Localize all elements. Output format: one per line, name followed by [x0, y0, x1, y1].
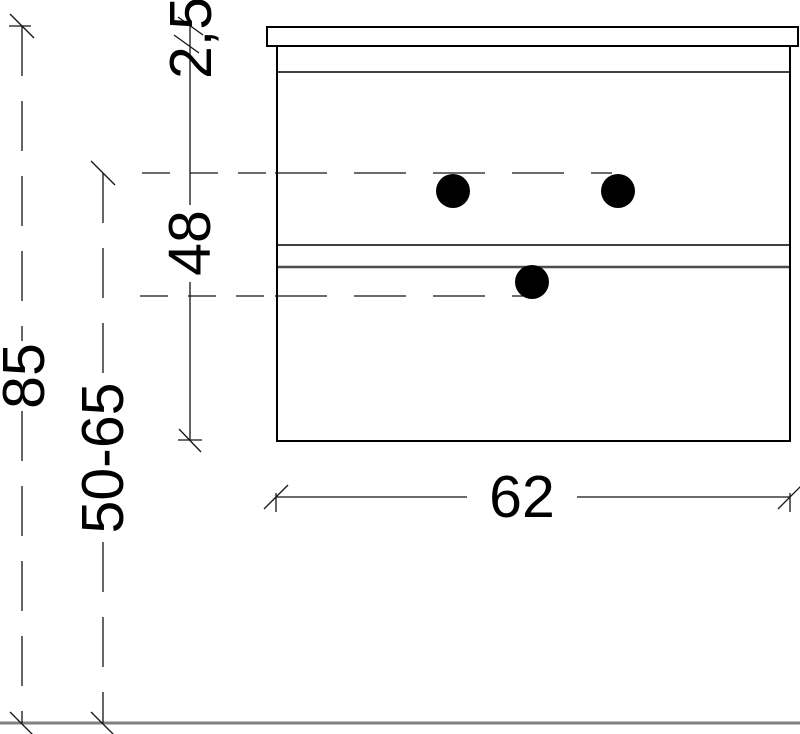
drawing-canvas: 85 50-65 2,5 48 62: [0, 0, 800, 734]
dim-50-65-label: 50-65: [70, 383, 136, 534]
dim-62-label: 62: [489, 464, 555, 530]
countertop-slab: [267, 27, 798, 46]
cabinet-body: [277, 46, 790, 441]
dim-48-label: 48: [157, 210, 223, 276]
cabinet-dimension-drawing: 85 50-65 2,5 48 62: [0, 0, 800, 734]
dim-85-label: 85: [0, 343, 57, 409]
dim-2-5-label: 2,5: [158, 0, 224, 79]
knob-bottom-center: [515, 265, 549, 299]
knob-top-right: [601, 174, 635, 208]
knob-top-left: [436, 174, 470, 208]
